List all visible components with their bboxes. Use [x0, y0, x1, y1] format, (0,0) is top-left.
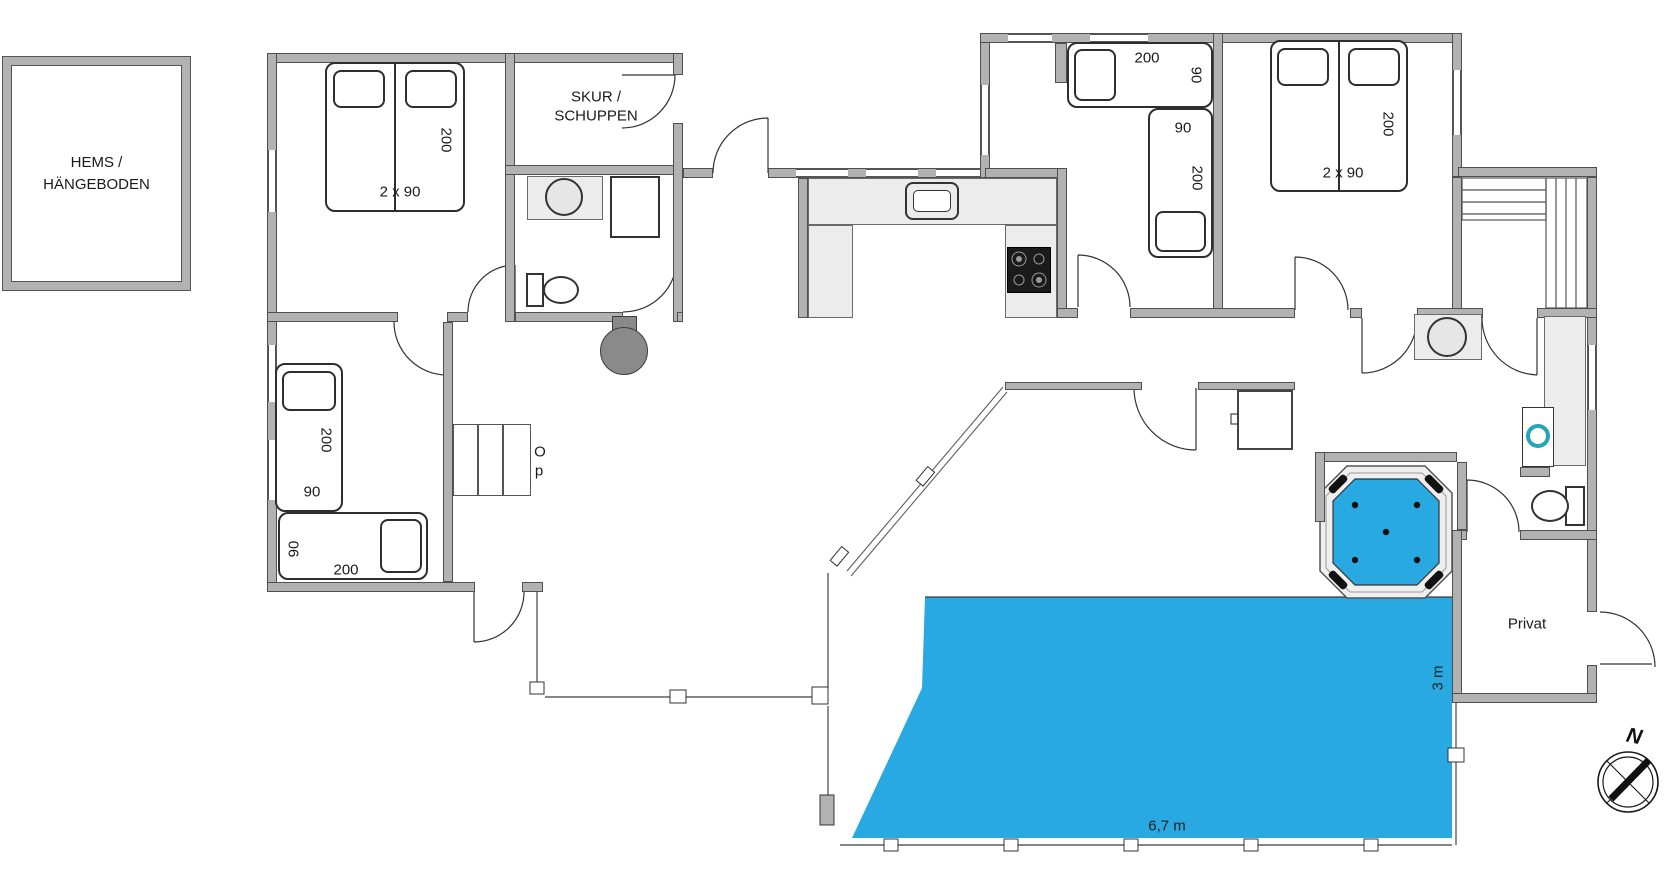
stairs-up-label-o: O — [534, 444, 546, 461]
window — [1008, 33, 1052, 43]
door-arcs — [394, 75, 1655, 667]
pool-width-label: 6,7 m — [1148, 818, 1186, 835]
swimming-pool — [852, 597, 1452, 838]
wall — [505, 53, 515, 322]
bed-size-label: 90 — [286, 541, 303, 558]
pillow — [333, 70, 385, 108]
bed-size-label: 2 x 90 — [380, 184, 421, 201]
wall — [1005, 382, 1142, 390]
window — [1452, 70, 1462, 135]
wall — [1350, 308, 1362, 318]
window — [267, 150, 277, 212]
wall — [505, 165, 683, 175]
window — [796, 168, 848, 178]
wall — [1198, 382, 1295, 390]
wall — [443, 322, 453, 582]
shed-label-line2: SCHUPPEN — [554, 108, 637, 125]
pillow — [380, 519, 422, 573]
wall — [1055, 43, 1067, 83]
kitchen-counter — [808, 225, 853, 318]
bed-size-label: 90 — [1175, 120, 1192, 137]
bed-size-label: 90 — [1188, 67, 1205, 84]
wall — [267, 582, 475, 592]
wood-stove — [600, 327, 648, 375]
pillow — [1348, 48, 1400, 86]
sink — [1427, 317, 1467, 357]
wall — [267, 53, 277, 592]
shed-label-line1: SKUR / — [571, 89, 621, 106]
hot-tub-headrest — [1327, 473, 1444, 590]
wall — [447, 312, 468, 322]
toilet-tank — [526, 273, 544, 307]
wall — [1315, 452, 1325, 522]
bed-size-label: 200 — [1134, 50, 1159, 67]
hems-label-line2: HÄNGEBODEN — [43, 174, 150, 196]
stove-burners — [1007, 247, 1051, 293]
window — [936, 168, 980, 178]
shower — [1237, 390, 1293, 450]
hot-tub — [1320, 466, 1452, 598]
pillow — [1277, 48, 1329, 86]
bed-size-label: 200 — [333, 562, 358, 579]
wall — [673, 123, 683, 322]
pool-depth-label: 3 m — [1430, 665, 1447, 690]
toilet — [1531, 490, 1569, 522]
wall — [985, 168, 1067, 178]
wall — [677, 312, 683, 322]
compass-icon — [1598, 752, 1658, 812]
stairs — [453, 424, 531, 496]
bed-size-label: 90 — [304, 484, 321, 501]
stair-tread — [477, 424, 479, 496]
wall — [1130, 308, 1295, 318]
wall — [798, 178, 808, 318]
bed-size-label: 200 — [1189, 165, 1206, 190]
shower — [610, 176, 660, 238]
pillow — [405, 70, 457, 108]
pillow — [282, 371, 336, 411]
wall — [1057, 168, 1067, 318]
hems-loft-box: HEMS / HÄNGEBODEN — [3, 57, 190, 290]
wall — [267, 53, 683, 63]
north-label: N — [1624, 724, 1644, 751]
wall — [515, 312, 623, 322]
wall — [267, 312, 398, 322]
stair-tread — [502, 424, 504, 496]
privat-room-label: Privat — [1508, 616, 1546, 633]
wall — [1520, 530, 1597, 540]
wall — [1452, 530, 1462, 703]
plan-linework — [0, 0, 1669, 887]
stairs-up-label-p: p — [535, 463, 543, 480]
bed-size-label: 2 x 90 — [1323, 165, 1364, 182]
wall — [1057, 308, 1078, 318]
wall — [1213, 33, 1223, 318]
sauna-bench — [1462, 178, 1587, 308]
wall — [1457, 462, 1467, 530]
kitchen-sink-bowl — [913, 190, 951, 212]
wall — [522, 582, 543, 592]
bed-size-label: 200 — [438, 127, 455, 152]
sink — [545, 178, 583, 216]
wall — [673, 53, 683, 75]
wall — [1458, 167, 1597, 177]
pillow — [1155, 211, 1206, 252]
bed-size-label: 200 — [318, 427, 335, 452]
pillow — [1074, 49, 1116, 101]
wall — [1452, 177, 1462, 318]
wall — [1452, 693, 1597, 703]
floor-plan: HEMS / HÄNGEBODEN — [0, 0, 1669, 887]
bed-size-label: 200 — [1380, 111, 1397, 136]
washing-machine-door-icon — [1526, 424, 1550, 448]
wall — [683, 168, 713, 178]
toilet — [543, 276, 579, 304]
wall — [1315, 452, 1457, 462]
fence-posts — [530, 467, 1464, 851]
window — [1587, 345, 1597, 410]
hems-label-line1: HEMS / — [71, 152, 123, 174]
window — [980, 85, 990, 155]
wall — [1520, 467, 1550, 477]
window — [866, 168, 918, 178]
